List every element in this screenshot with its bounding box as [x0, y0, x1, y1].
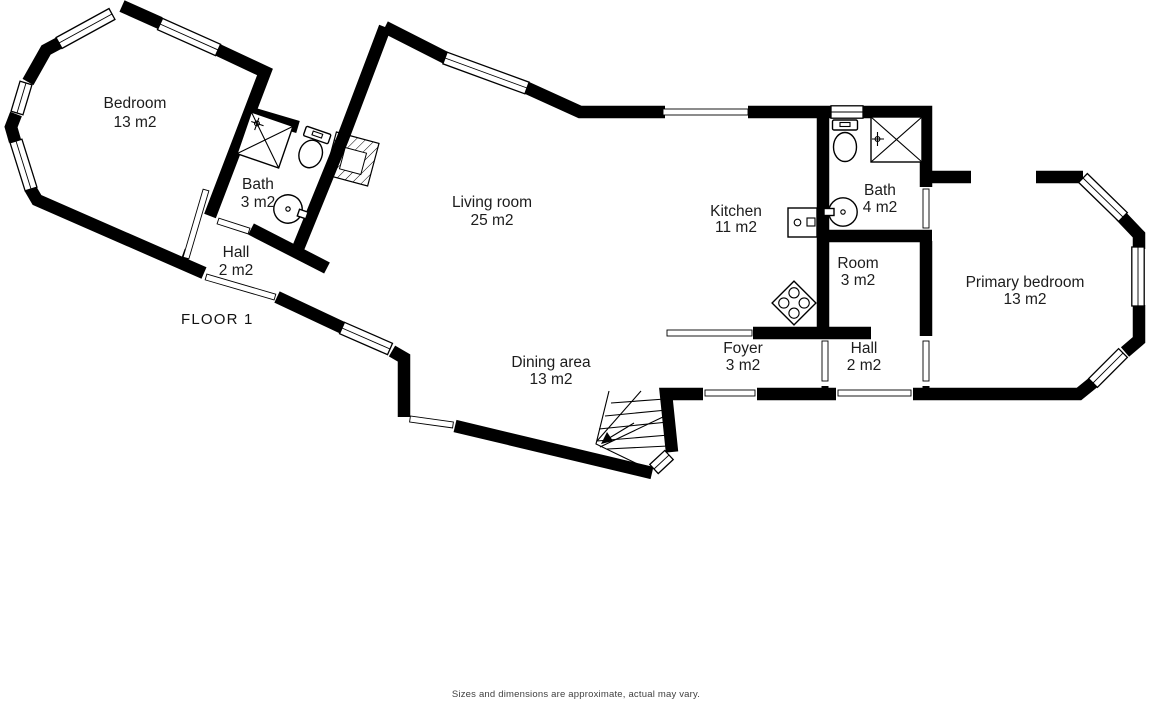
- walls: [11, 6, 1139, 473]
- wall-segment: [30, 188, 204, 273]
- door-opening: [923, 341, 929, 381]
- room-label-bath-main-name: Bath: [864, 182, 896, 199]
- window: [340, 322, 393, 354]
- room-label-hall-right-area: 2 m2: [847, 357, 881, 374]
- floor-plan-page: Bedroom 13 m2 Bath 3 m2 Hall 2 m2 Living…: [0, 0, 1152, 711]
- wall-segment: [1125, 305, 1139, 352]
- window: [1089, 349, 1128, 388]
- room-label-primary-bedroom-area: 13 m2: [1003, 291, 1046, 308]
- glass-opening: [663, 109, 748, 115]
- wall-segment: [11, 114, 16, 141]
- wall-segment: [392, 351, 404, 417]
- window: [157, 18, 220, 55]
- disclaimer-text: Sizes and dimensions are approximate, ac…: [452, 689, 700, 700]
- floor-plan: Bedroom 13 m2 Bath 3 m2 Hall 2 m2 Living…: [0, 0, 1152, 711]
- room-label-living-area: 25 m2: [470, 212, 513, 229]
- wall-segment: [277, 297, 343, 328]
- wall-segment: [251, 229, 327, 268]
- shower-icon: [871, 117, 922, 162]
- wall-segment: [525, 87, 665, 112]
- washer-icon: [788, 208, 817, 237]
- wall-segment: [666, 394, 703, 452]
- toilet-icon: [833, 120, 858, 162]
- room-label-hall-left-name: Hall: [223, 244, 250, 261]
- room-label-bath-small-area: 3 m2: [241, 194, 275, 211]
- window: [650, 450, 673, 473]
- floor-label: FLOOR 1: [181, 311, 254, 328]
- window: [1132, 247, 1144, 306]
- window: [831, 106, 863, 118]
- wall-segment: [28, 42, 61, 82]
- window: [443, 52, 529, 94]
- room-label-kitchen-name: Kitchen: [710, 203, 762, 220]
- window: [56, 9, 115, 49]
- room-label-living-name: Living room: [452, 194, 532, 211]
- door-opening: [923, 189, 929, 228]
- room-label-hall-right-name: Hall: [851, 340, 878, 357]
- room-label-hall-left-area: 2 m2: [219, 262, 253, 279]
- wall-segment: [455, 426, 652, 473]
- room-label-bath-small-name: Bath: [242, 176, 274, 193]
- windows: [10, 9, 1144, 474]
- glass-opening: [667, 330, 752, 336]
- wall-segment: [913, 381, 1095, 394]
- glass-opening: [705, 390, 755, 396]
- room-label-foyer-name: Foyer: [723, 340, 763, 357]
- window: [1079, 174, 1128, 222]
- glass-opening: [410, 416, 454, 428]
- room-label-room-name: Room: [837, 255, 878, 272]
- room-label-room-area: 3 m2: [841, 272, 875, 289]
- room-label-bath-main-area: 4 m2: [863, 199, 897, 216]
- glass-opening: [838, 390, 911, 396]
- window: [10, 139, 37, 191]
- wall-segment: [122, 6, 160, 23]
- room-label-kitchen-area: 11 m2: [715, 219, 757, 236]
- stove-icon: [772, 281, 816, 325]
- door-opening: [217, 218, 250, 234]
- room-label-bedroom-area: 13 m2: [113, 114, 156, 131]
- room-label-primary-bedroom-name: Primary bedroom: [966, 274, 1085, 291]
- room-label-dining-area: 13 m2: [529, 371, 572, 388]
- door-opening: [822, 341, 828, 381]
- wall-segment: [385, 27, 446, 58]
- wall-segment: [1120, 215, 1139, 249]
- room-label-foyer-area: 3 m2: [726, 357, 760, 374]
- glass-opening: [183, 189, 209, 259]
- room-label-bedroom-name: Bedroom: [104, 95, 167, 112]
- room-label-dining-name: Dining area: [511, 354, 591, 371]
- window: [11, 81, 32, 115]
